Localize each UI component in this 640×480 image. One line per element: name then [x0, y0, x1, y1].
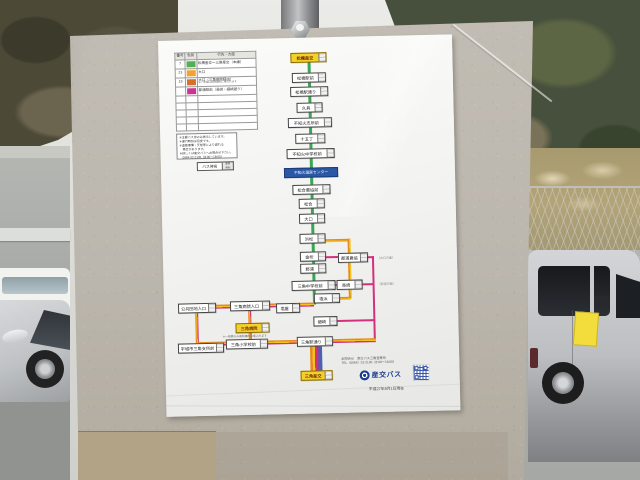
- wheel: [26, 350, 64, 388]
- direction-annotation: （郡浦方面）: [378, 282, 396, 286]
- timetable-icon: [332, 294, 339, 302]
- board-base-patch: [78, 432, 216, 480]
- parking-lot-left: [0, 398, 70, 480]
- timetable-icon: [360, 253, 367, 261]
- timetable-icon: [317, 199, 324, 207]
- timetable-icon: [325, 337, 332, 345]
- chain-link-fence: [517, 186, 640, 258]
- photo-bus-stop-sign: 番号 色別 行先・方面 7 松橋産交～三角産交（本線） 23 大口 15 大口（…: [0, 0, 640, 480]
- minivan-rear-window: [538, 266, 610, 316]
- note-line: 0964-52-2135（8:00～18:00）: [180, 155, 235, 160]
- side-mirror: [594, 296, 609, 307]
- timetable-icon: [318, 264, 325, 272]
- timetable-icon: [327, 281, 334, 289]
- bus-stop: 金桁: [300, 251, 326, 262]
- timetable-icon: [208, 304, 215, 312]
- qr-code: [412, 364, 429, 381]
- direction-annotation: （大口方面）: [377, 256, 395, 260]
- timetable-icon: [318, 53, 325, 61]
- route-color-swatch: [187, 61, 195, 67]
- timetable-icon: [317, 234, 324, 242]
- board-stain: [216, 432, 508, 480]
- silver-hatchback: [0, 300, 70, 402]
- timetable-icon: [262, 302, 269, 310]
- route-line-pink: [372, 256, 375, 340]
- contact-line: TEL（0964）52-2135（8:00～18:00）: [341, 359, 453, 366]
- wheel-hub: [35, 359, 55, 379]
- guardrail: [0, 228, 70, 241]
- route-color-swatch: [187, 79, 195, 85]
- bus-stop: 松橋駅通り: [290, 86, 328, 97]
- timetable-icon: [318, 73, 325, 81]
- wheel-hub: [552, 372, 574, 394]
- revision-date: 平成27年8月1日現在: [369, 387, 404, 393]
- headlight: [1, 327, 29, 344]
- minivan-pillar: [590, 266, 594, 316]
- route-band: [195, 308, 199, 344]
- bus-stop: 長崎: [336, 279, 362, 290]
- operator-logo: 産交バス: [360, 369, 402, 381]
- silver-minivan: [528, 250, 640, 462]
- bus-stop-highlighted: 不知火温泉センター: [284, 167, 338, 178]
- timetable-icon: [322, 185, 329, 193]
- bus-stop: 三角病院入口: [230, 301, 270, 312]
- yellow-notice-sticker: [573, 311, 599, 347]
- route-legend-table: 番号 色別 行先・方面 7 松橋産交～三角産交（本線） 23 大口 15 大口（…: [174, 51, 258, 132]
- bus-stop: 宇城市三角支所前: [178, 343, 224, 354]
- windshield: [30, 310, 70, 350]
- bus-stop: 久具: [296, 102, 322, 113]
- timetable-icon: [329, 317, 336, 325]
- bus-stop: 塩屋: [276, 303, 300, 314]
- bolt-highlight: [296, 24, 304, 31]
- stop-sample-label: バス停名: [197, 162, 223, 172]
- road-edge-left: [0, 146, 70, 158]
- timetable-icon: [318, 252, 325, 260]
- bus-stop-terminal: 三角産交: [301, 370, 333, 381]
- bus-stop: 松合: [299, 198, 325, 209]
- bus-stop: 松合農協前: [292, 184, 330, 195]
- terminal-band: [310, 346, 323, 371]
- timetable-icon: [314, 103, 321, 111]
- bus-stop: 十五丁: [295, 133, 325, 144]
- route-color-swatch: [187, 70, 195, 76]
- bus-stop: 公共団地入口: [178, 303, 216, 314]
- route-color-swatch: [187, 88, 195, 94]
- route-number: 23: [175, 69, 185, 78]
- bus-stop: 三角小学校前: [226, 339, 268, 350]
- bus-stop: 大口: [299, 213, 325, 224]
- timetable-icon: [317, 214, 324, 222]
- van-window: [2, 277, 68, 294]
- bus-stop: 不知火支所前: [288, 117, 332, 128]
- notes-box: ※主要バス停のみ表示しています。 ※運行時刻は目安です。 ※道路事情・天候等によ…: [176, 132, 238, 159]
- fare-time-icon: 運賃 時刻: [223, 161, 234, 170]
- paper-wrinkle: [166, 405, 460, 407]
- wheel: [542, 362, 584, 404]
- timetable-icon: [354, 280, 361, 288]
- bus-stop: 郡浦: [300, 263, 326, 274]
- route-number: [176, 87, 186, 96]
- timetable-icon: [292, 304, 299, 312]
- route-line-pink: [337, 319, 374, 321]
- bus-route-map-poster: 番号 色別 行先・方面 7 松橋産交～三角産交（本線） 23 大口 15 大口（…: [158, 34, 460, 417]
- operator-name: 産交バス: [372, 369, 402, 380]
- bus-stop-terminal: 三角病院: [235, 323, 269, 334]
- bus-stop: 細崎: [313, 316, 337, 327]
- bus-stop: 郡浦農協: [338, 252, 368, 263]
- tail-lamp: [530, 348, 538, 368]
- timetable-icon: [261, 324, 268, 332]
- bus-stop: 三角中学校前: [291, 280, 335, 291]
- bus-stop: 松橋駅前: [292, 72, 326, 83]
- route-number: 7: [175, 60, 185, 69]
- route-line-pink: [363, 283, 374, 285]
- route-line-orange: [340, 297, 351, 300]
- bus-stop: 三角駅通り: [297, 336, 333, 347]
- timetable-icon: [317, 134, 324, 142]
- contact-info: お問合せ 産交バス三角営業所 TEL（0964）52-2135（8:00～18:…: [341, 354, 453, 366]
- route-number: 15: [175, 78, 185, 87]
- timetable-icon: [326, 149, 333, 157]
- timetable-icon: [324, 118, 331, 126]
- timetable-icon: [320, 87, 327, 95]
- minivan-front-window: [616, 274, 640, 318]
- bus-stop: 塩浜: [314, 293, 340, 304]
- timetable-icon: [216, 344, 223, 352]
- bus-stop-terminal: 松橋産交: [290, 52, 326, 63]
- bus-stop: 浜松: [299, 233, 325, 244]
- sankou-bus-logo-icon: [360, 370, 370, 380]
- timetable-icon: [325, 371, 332, 379]
- bus-stop: 不知火中学校前: [286, 148, 334, 159]
- stop-sample-key: バス停名 運賃 時刻: [197, 161, 234, 171]
- timetable-icon: [260, 340, 267, 348]
- route-band: [198, 338, 376, 346]
- paper-wrinkle: [166, 384, 460, 397]
